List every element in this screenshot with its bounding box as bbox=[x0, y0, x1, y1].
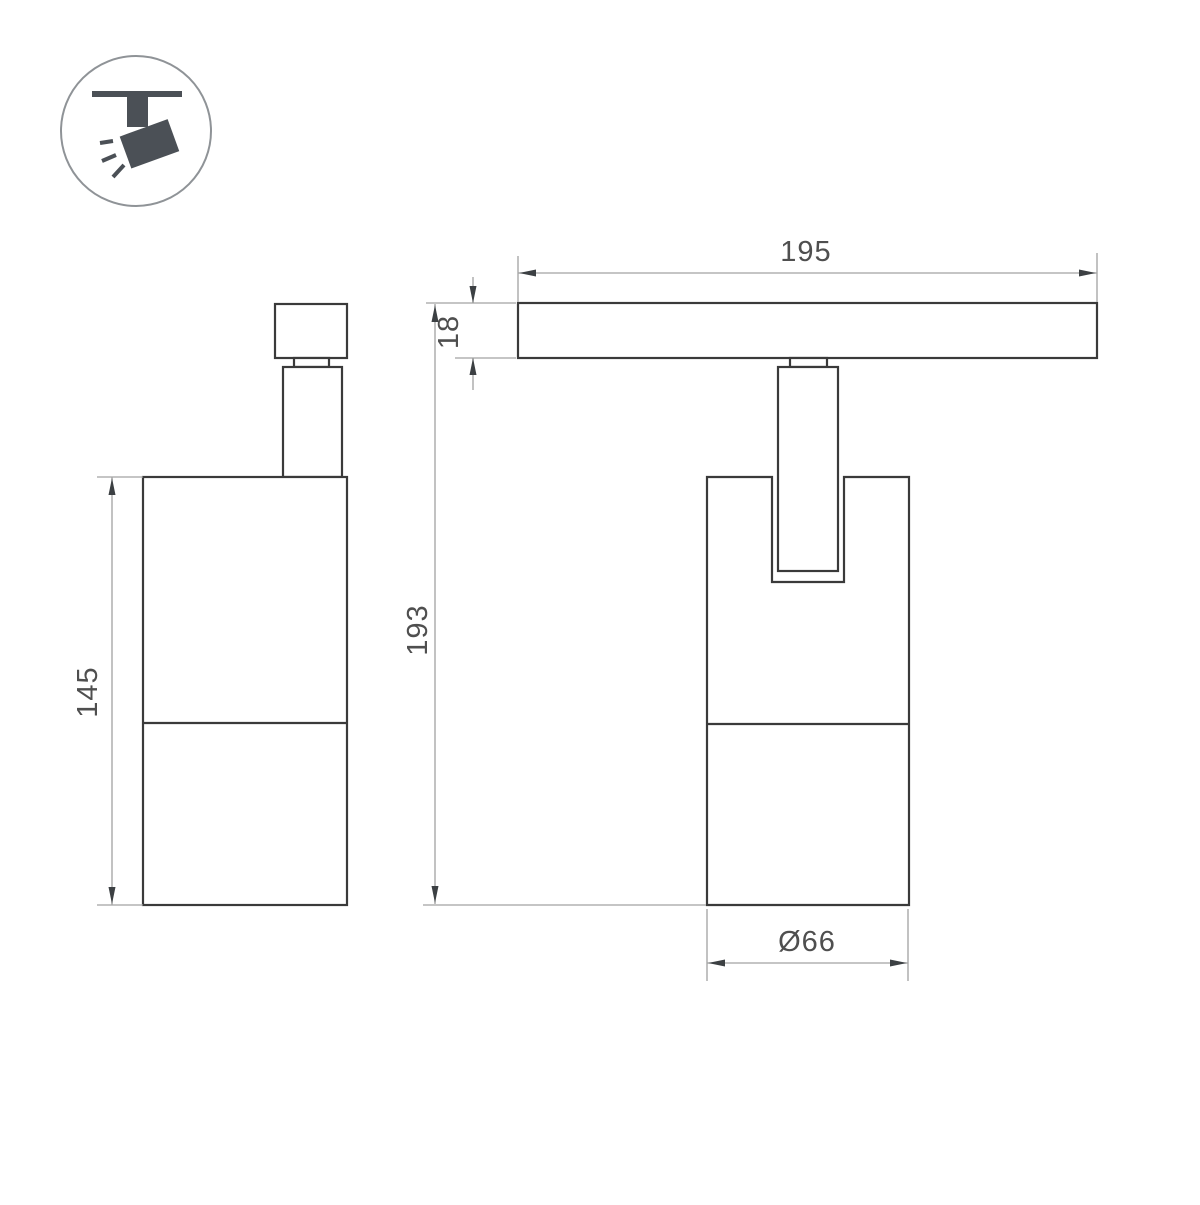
dim-track-height: 18 bbox=[426, 277, 516, 390]
front-view-collar bbox=[790, 358, 827, 367]
side-view-collar bbox=[294, 358, 329, 367]
luminaire-dimension-drawing: 145 195 18 bbox=[0, 0, 1200, 1200]
arrowhead-down bbox=[432, 886, 439, 903]
track-spotlight-icon bbox=[61, 56, 211, 206]
arrowhead-down bbox=[109, 887, 116, 904]
dim-label-body-diameter: Ø66 bbox=[778, 926, 836, 958]
dim-label-total-height: 193 bbox=[402, 604, 434, 655]
dim-total-height: 193 bbox=[402, 304, 706, 905]
arrowhead-up bbox=[470, 358, 477, 375]
side-view-stem bbox=[283, 367, 342, 477]
side-view bbox=[143, 304, 347, 905]
arrowhead-left bbox=[519, 270, 536, 277]
front-view-stem bbox=[778, 367, 838, 571]
dim-body-diameter: Ø66 bbox=[707, 909, 908, 981]
dim-track-length: 195 bbox=[518, 236, 1097, 302]
side-view-body bbox=[143, 477, 347, 905]
arrowhead-up bbox=[109, 478, 116, 495]
arrowhead-up bbox=[432, 305, 439, 322]
arrowhead-right bbox=[890, 960, 907, 967]
dim-label-body-height: 145 bbox=[72, 666, 104, 717]
dim-label-track-length: 195 bbox=[780, 236, 831, 268]
front-view bbox=[518, 303, 1097, 905]
icon-track-stem bbox=[127, 95, 148, 127]
technical-drawing-page: 145 195 18 bbox=[0, 0, 1200, 1200]
front-view-track-profile bbox=[518, 303, 1097, 358]
arrowhead-right bbox=[1079, 270, 1096, 277]
side-view-track-adapter bbox=[275, 304, 347, 358]
dim-body-height: 145 bbox=[72, 477, 143, 905]
arrowhead-left bbox=[708, 960, 725, 967]
arrowhead-down bbox=[470, 286, 477, 303]
